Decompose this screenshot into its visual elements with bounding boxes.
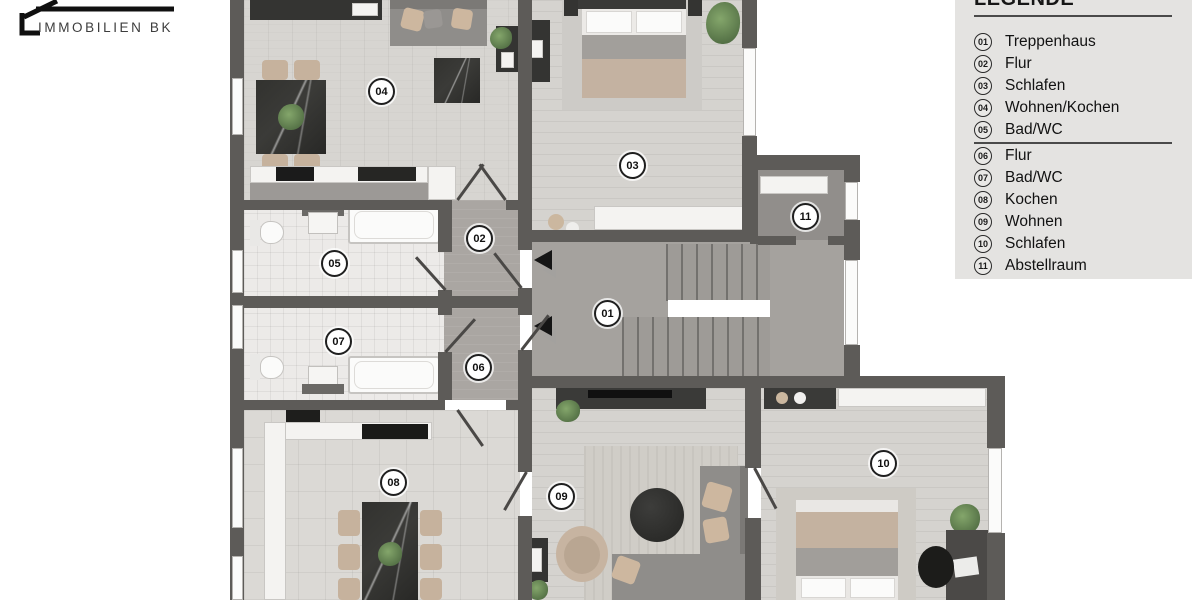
stove [276,167,314,181]
room-badge-11: 11 [792,203,819,230]
legend-item-number: 01 [974,33,992,51]
dining-chair [420,544,442,570]
legend-item-label: Schlafen [1005,235,1065,253]
legend-item: 02 Flur [974,53,1179,75]
legend-item-label: Wohnen/Kochen [1005,99,1119,117]
legend-divider [974,142,1172,144]
bathtub-inner [354,361,434,389]
room-badge-04: 04 [368,78,395,105]
room-badge-08: 08 [380,469,407,496]
nightstand [564,0,578,16]
legend-item-number: 11 [974,257,992,275]
plant [378,542,402,566]
toilet-tank [250,354,260,380]
room-badge-number: 09 [555,491,567,503]
coffee-machine [501,52,514,68]
plant [556,400,580,422]
room-badge-07: 07 [325,328,352,355]
wall-segment [745,388,761,468]
room-badge-number: 08 [387,477,399,489]
sofa-cushion [702,516,730,544]
legend-item-number: 02 [974,55,992,73]
room-badge-06: 06 [465,354,492,381]
legend-item: 10 Schlafen [974,233,1179,255]
wall-segment [438,352,452,400]
wall-segment [230,200,445,210]
toilet-tank [250,220,260,246]
wall-segment [230,296,532,308]
wall-segment [844,170,860,182]
wall-segment [987,376,1005,448]
laptop [953,556,979,577]
wardrobe [838,388,986,407]
legend-item-label: Abstellraum [1005,257,1087,275]
wall-segment [745,518,761,600]
legend-item-label: Bad/WC [1005,169,1063,187]
wall-segment [518,516,532,600]
legend-item-number: 05 [974,121,992,139]
room-badge-03: 03 [619,152,646,179]
kitchen-counter-edge [250,183,428,200]
room-badge-number: 10 [877,458,889,470]
plant [278,104,304,130]
dining-chair [262,60,288,80]
legend-item-label: Kochen [1005,191,1058,209]
wall-segment [230,400,445,410]
office-chair [918,546,954,588]
tv [588,390,672,398]
legend-item-number: 07 [974,169,992,187]
legend-item-number: 09 [974,213,992,231]
bed-blanket-gray [582,35,686,59]
dresser-decor [776,392,788,404]
nightstand [688,0,702,16]
floorplan-page: IMMOBILIEN BK [0,0,1200,600]
wall-segment [518,388,532,472]
dining-chair [294,60,320,80]
wall-segment [742,0,757,48]
legend-item: 08 Kochen [974,189,1179,211]
room-badge-01: 01 [594,300,621,327]
coffee-table [630,488,684,542]
wall-segment [750,170,758,244]
floor-plan: 01 02 03 04 05 06 07 08 09 10 11 [0,0,1010,600]
wall-segment [828,236,844,245]
legend-item-label: Bad/WC [1005,121,1063,139]
legend-item: 07 Bad/WC [974,167,1179,189]
room-badge-number: 06 [472,362,484,374]
kitchen-cabinet [428,166,456,200]
bed-pillow [801,578,846,598]
plant [706,2,740,44]
bed-blanket-gray [796,548,898,576]
legend-item: 11 Abstellraum [974,255,1179,277]
legend-item: 01 Treppenhaus [974,31,1179,53]
wall-segment [518,288,532,315]
legend-item: 06 Flur [974,145,1179,167]
room-badge-number: 02 [473,233,485,245]
bed-blanket-beige [796,512,898,548]
stairs-upper-flight [666,244,770,301]
dining-chair [338,510,360,536]
room-badge-number: 01 [601,308,613,320]
room-badge-02: 02 [466,225,493,252]
room-badge-number: 07 [332,336,344,348]
legend-panel: LEGENDE 01 Treppenhaus 02 Flur 03 Schlaf… [955,0,1192,279]
wall-segment [506,200,532,210]
dining-chair [420,510,442,536]
bathtub-inner [354,211,434,239]
kitchen-counter-marble [264,422,286,600]
legend-item-label: Flur [1005,55,1032,73]
entrance-arrow [534,250,552,270]
coffee-table [434,58,480,103]
cooktop [358,167,416,181]
wall-segment [750,155,860,170]
sink-vanity [302,384,344,394]
window [232,448,243,528]
room-badge-10: 10 [870,450,897,477]
bed-blanket-beige [582,59,686,98]
window [845,260,858,345]
wall-segment [758,236,796,245]
legend-item-label: Wohnen [1005,213,1062,231]
wall-segment [518,376,1005,388]
wall-segment [987,533,1005,600]
bench [594,206,744,230]
room-badge-number: 05 [328,258,340,270]
room-badge-09: 09 [548,483,575,510]
storage-shelf [760,176,828,194]
room-badge-number: 11 [800,211,812,223]
window [232,556,243,600]
legend-item-number: 10 [974,235,992,253]
wall-segment [438,200,452,252]
dining-chair [338,578,360,600]
legend-item: 03 Schlafen [974,75,1179,97]
kitchen-sink [352,3,378,16]
legend-item-number: 04 [974,99,992,117]
legend-items: 01 Treppenhaus 02 Flur 03 Schlafen 04 Wo… [974,31,1179,277]
toilet-bowl [260,221,284,244]
room-badge-number: 03 [626,160,638,172]
stairs-landing [668,300,770,317]
stairs-lower-flight [622,317,770,377]
dining-chair [420,578,442,600]
legend-item-label: Flur [1005,147,1032,165]
legend-item-number: 06 [974,147,992,165]
legend-item: 04 Wohnen/Kochen [974,97,1179,119]
legend-title-rule [974,15,1172,17]
legend-item: 05 Bad/WC [974,119,1179,141]
bed-headboard [578,0,686,9]
window [743,48,756,136]
stove [362,424,428,439]
legend-item-label: Treppenhaus [1005,33,1096,51]
window [232,78,243,135]
room-badge-05: 05 [321,250,348,277]
sink-basin [308,212,338,234]
window [232,250,243,293]
legend-item-label: Schlafen [1005,77,1065,95]
wall-segment [518,230,750,242]
bed-pillow [586,11,632,33]
plant [490,27,512,49]
wall-segment [844,220,860,260]
sofa-cushion [451,8,474,31]
dining-chair [338,544,360,570]
window [845,182,858,220]
legend-item-number: 03 [974,77,992,95]
wall-segment [844,345,860,376]
wall-segment [518,0,532,232]
sofa-cushion [423,9,443,29]
dresser-decor [794,392,806,404]
toilet-bowl [260,356,284,379]
bed-pillow [636,11,682,33]
room-badge-number: 04 [375,86,387,98]
legend-item: 09 Wohnen [974,211,1179,233]
window [232,305,243,349]
stool [548,214,564,230]
bed-pillow [850,578,895,598]
legend-item-number: 08 [974,191,992,209]
legend-title: LEGENDE [974,0,1074,11]
armchair-seat [564,536,600,574]
window [988,448,1002,533]
